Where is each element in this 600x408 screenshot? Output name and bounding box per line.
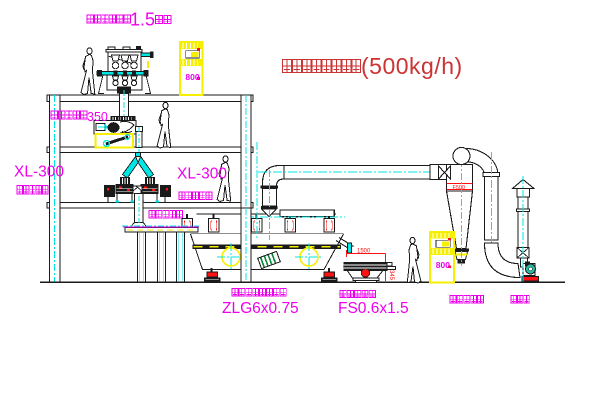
- svg-text:XL-300: XL-300: [177, 166, 227, 183]
- svg-text:ZLG6x0.75: ZLG6x0.75: [222, 300, 299, 317]
- svg-text:1500: 1500: [357, 249, 371, 255]
- svg-text:1.5: 1.5: [130, 10, 155, 30]
- svg-text:F500: F500: [453, 185, 466, 191]
- svg-text:800: 800: [185, 72, 199, 82]
- svg-text:345: 345: [388, 270, 394, 281]
- svg-text:XL-300: XL-300: [14, 164, 64, 181]
- svg-text:800: 800: [436, 260, 450, 270]
- svg-text:FS0.6x1.5: FS0.6x1.5: [338, 300, 409, 317]
- svg-text:(500kg/h): (500kg/h): [361, 53, 463, 79]
- svg-text:350: 350: [87, 110, 108, 124]
